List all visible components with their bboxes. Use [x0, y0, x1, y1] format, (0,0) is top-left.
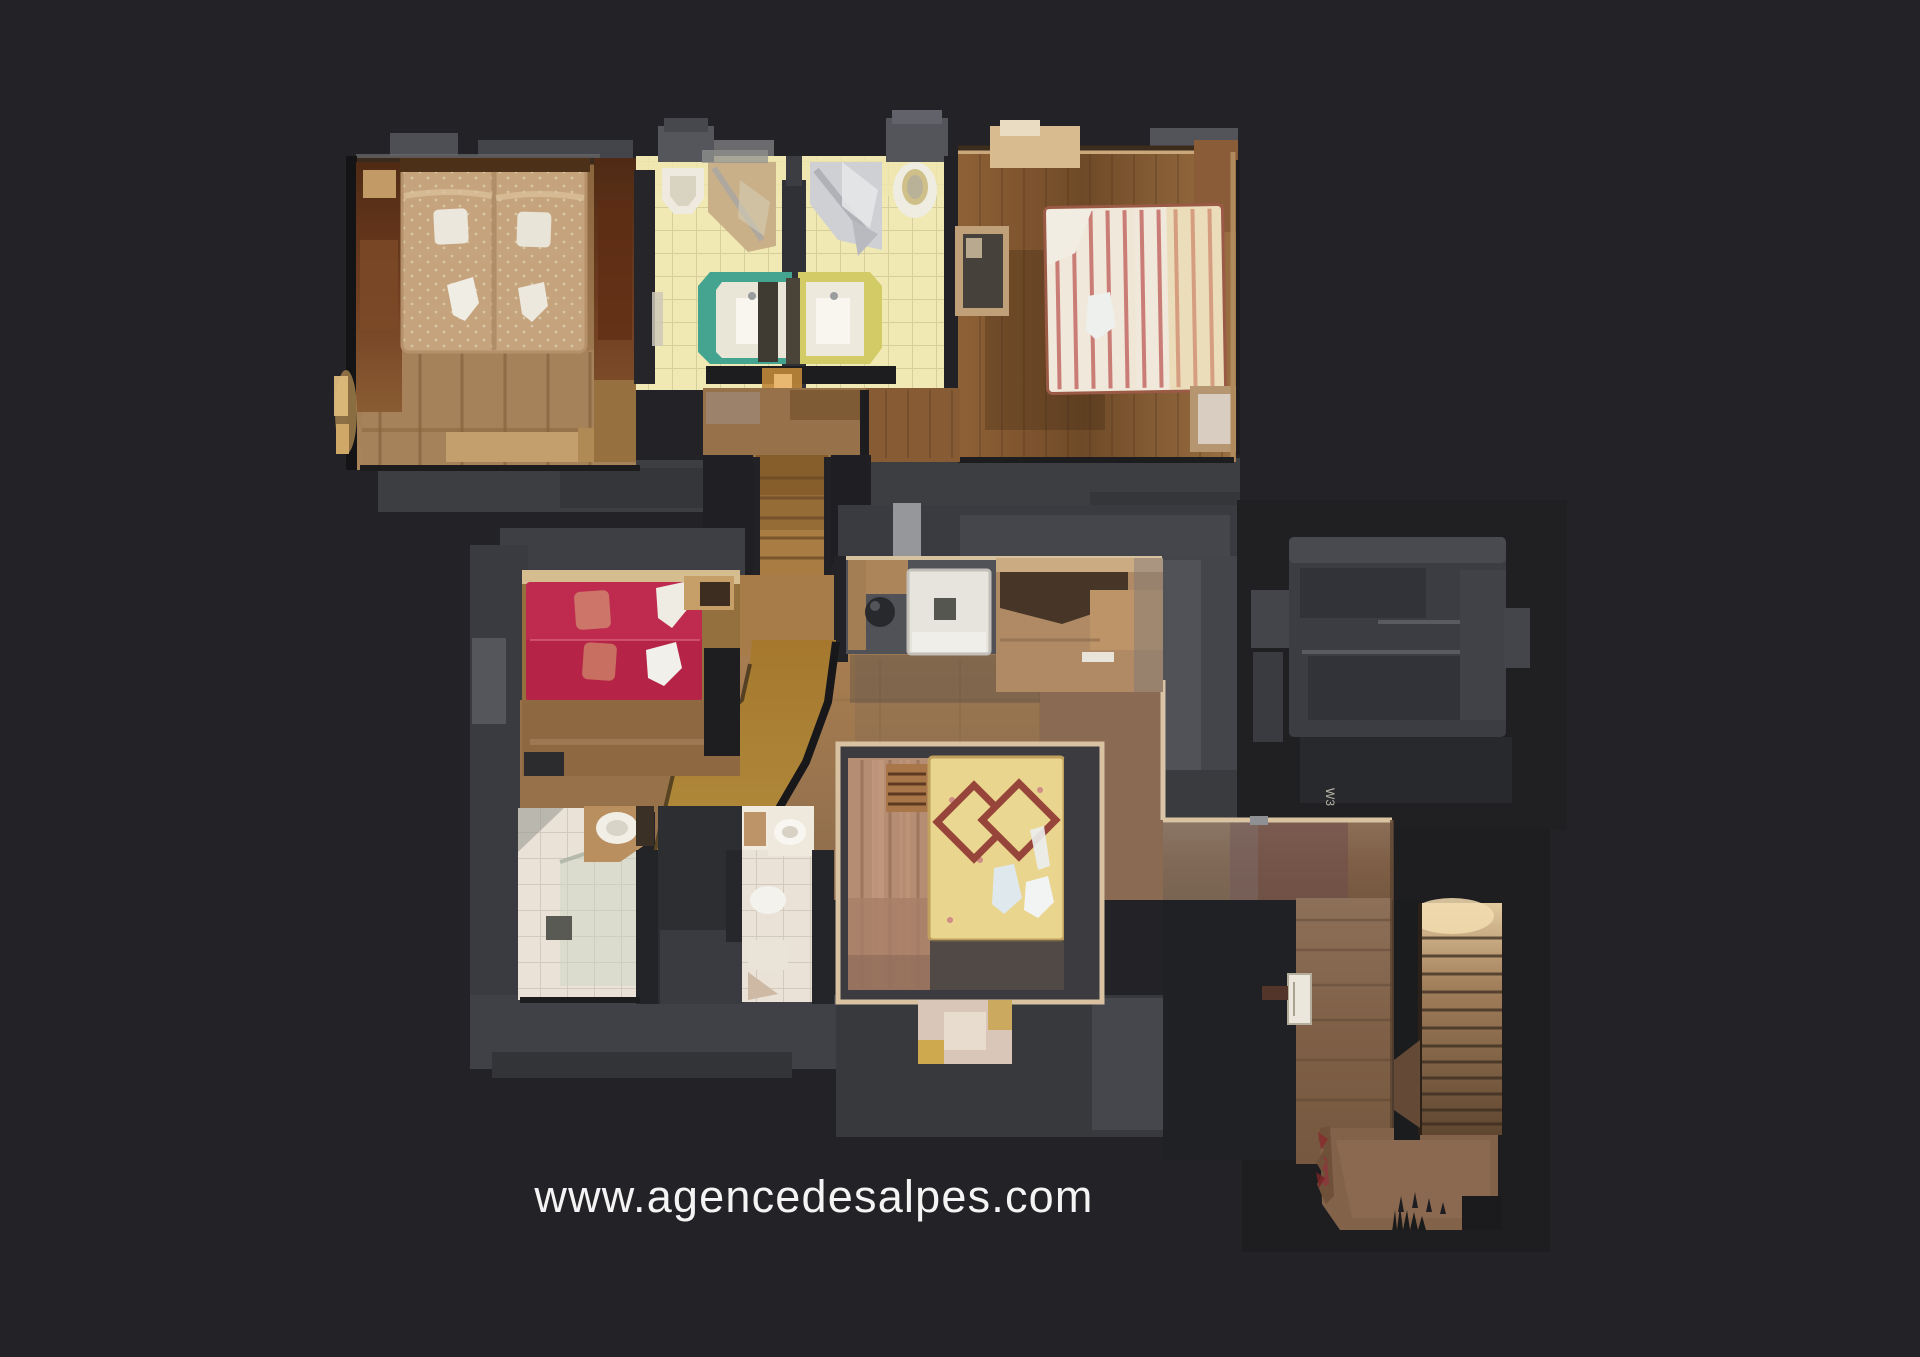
- svg-text:W3: W3: [1323, 788, 1337, 806]
- svg-text:www.agencedesalpes.com: www.agencedesalpes.com: [533, 1171, 1093, 1222]
